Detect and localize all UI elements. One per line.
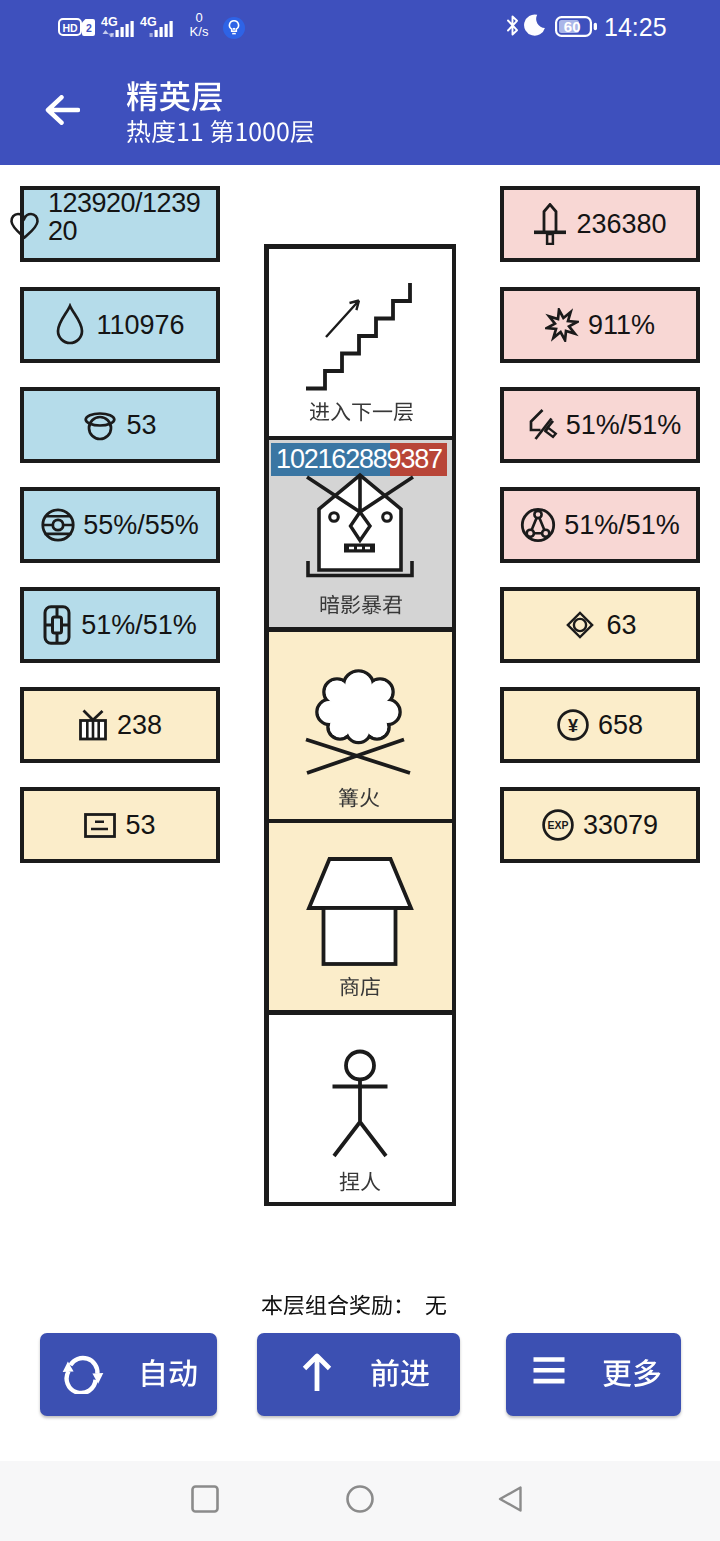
svg-text:HD: HD [62,22,78,34]
svg-text:¥: ¥ [568,716,578,736]
svg-text:EXP: EXP [547,819,568,831]
svg-text:4G: 4G [101,15,118,29]
svg-text:60: 60 [564,18,581,35]
svg-text:4G: 4G [140,15,157,29]
svg-text:2: 2 [86,22,92,34]
